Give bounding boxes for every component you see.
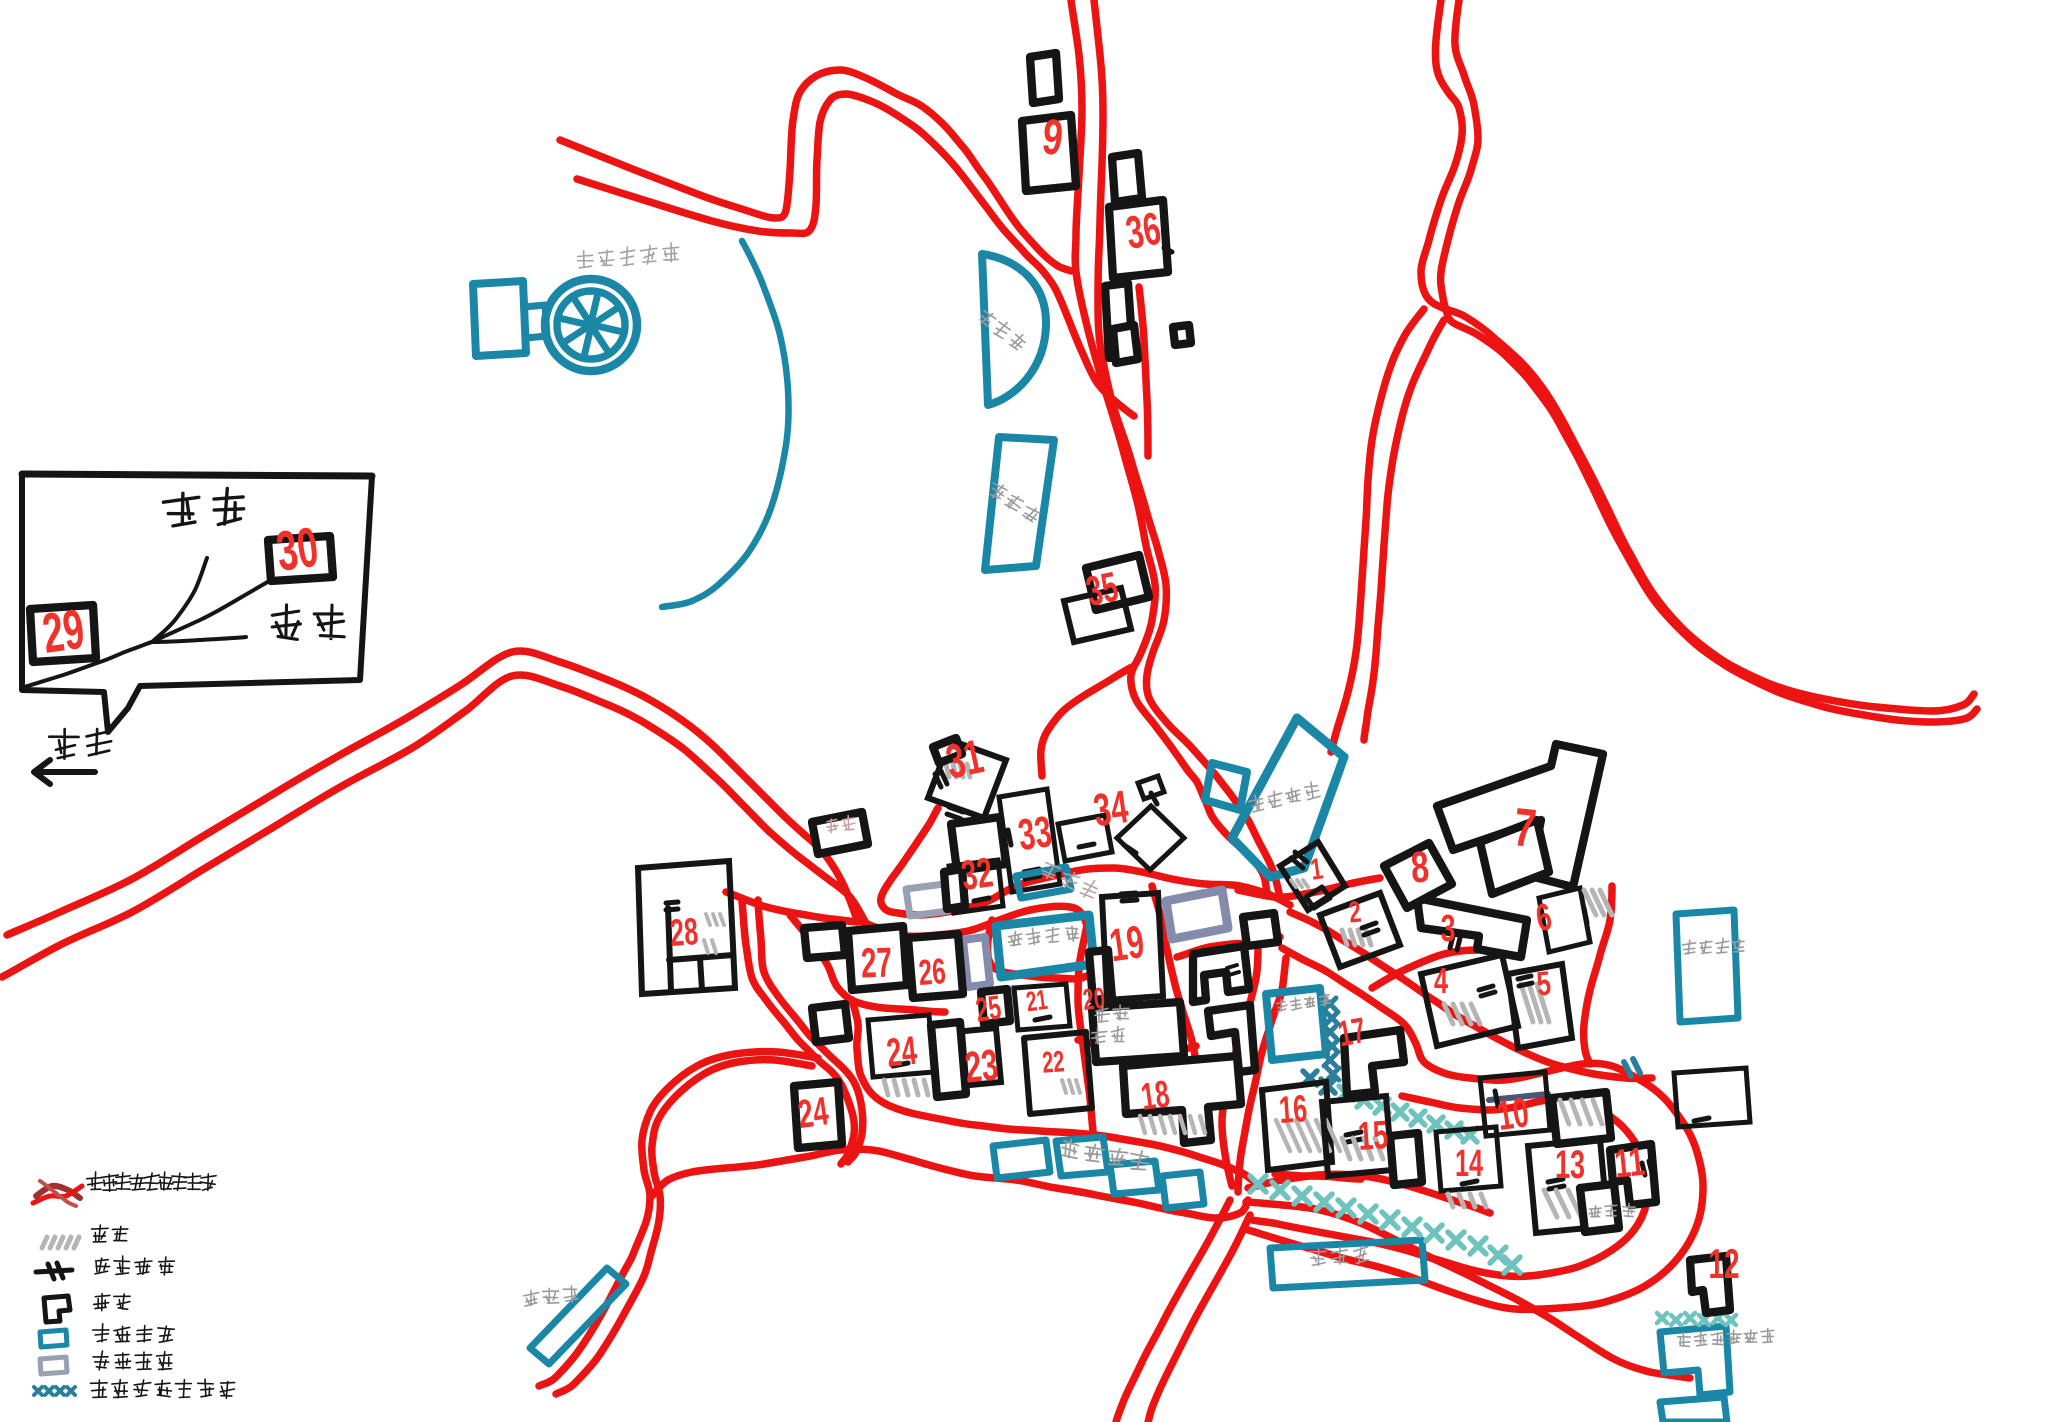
svg-text:19: 19 <box>1106 915 1147 971</box>
svg-text:14: 14 <box>1455 1143 1483 1185</box>
svg-text:10: 10 <box>1494 1088 1531 1139</box>
svg-text:29: 29 <box>39 597 88 665</box>
svg-text:4: 4 <box>1434 960 1448 1001</box>
svg-text:25: 25 <box>973 989 1003 1030</box>
svg-text:21: 21 <box>1024 984 1049 1018</box>
svg-text:27: 27 <box>860 938 893 986</box>
svg-text:26: 26 <box>917 950 947 993</box>
svg-text:11: 11 <box>1612 1140 1646 1187</box>
svg-text:18: 18 <box>1139 1073 1173 1118</box>
svg-text:33: 33 <box>1015 807 1054 860</box>
svg-text:12: 12 <box>1709 1240 1740 1287</box>
svg-text:8: 8 <box>1409 842 1430 892</box>
svg-text:28: 28 <box>669 911 700 955</box>
svg-text:15: 15 <box>1357 1113 1390 1159</box>
svg-text:16: 16 <box>1278 1088 1309 1132</box>
svg-text:13: 13 <box>1555 1143 1585 1187</box>
svg-text:22: 22 <box>1041 1045 1065 1079</box>
svg-text:30: 30 <box>273 515 322 583</box>
svg-text:3: 3 <box>1441 908 1456 950</box>
svg-text:32: 32 <box>958 848 995 899</box>
svg-text:23: 23 <box>963 1040 1001 1092</box>
svg-text:24: 24 <box>884 1029 919 1076</box>
